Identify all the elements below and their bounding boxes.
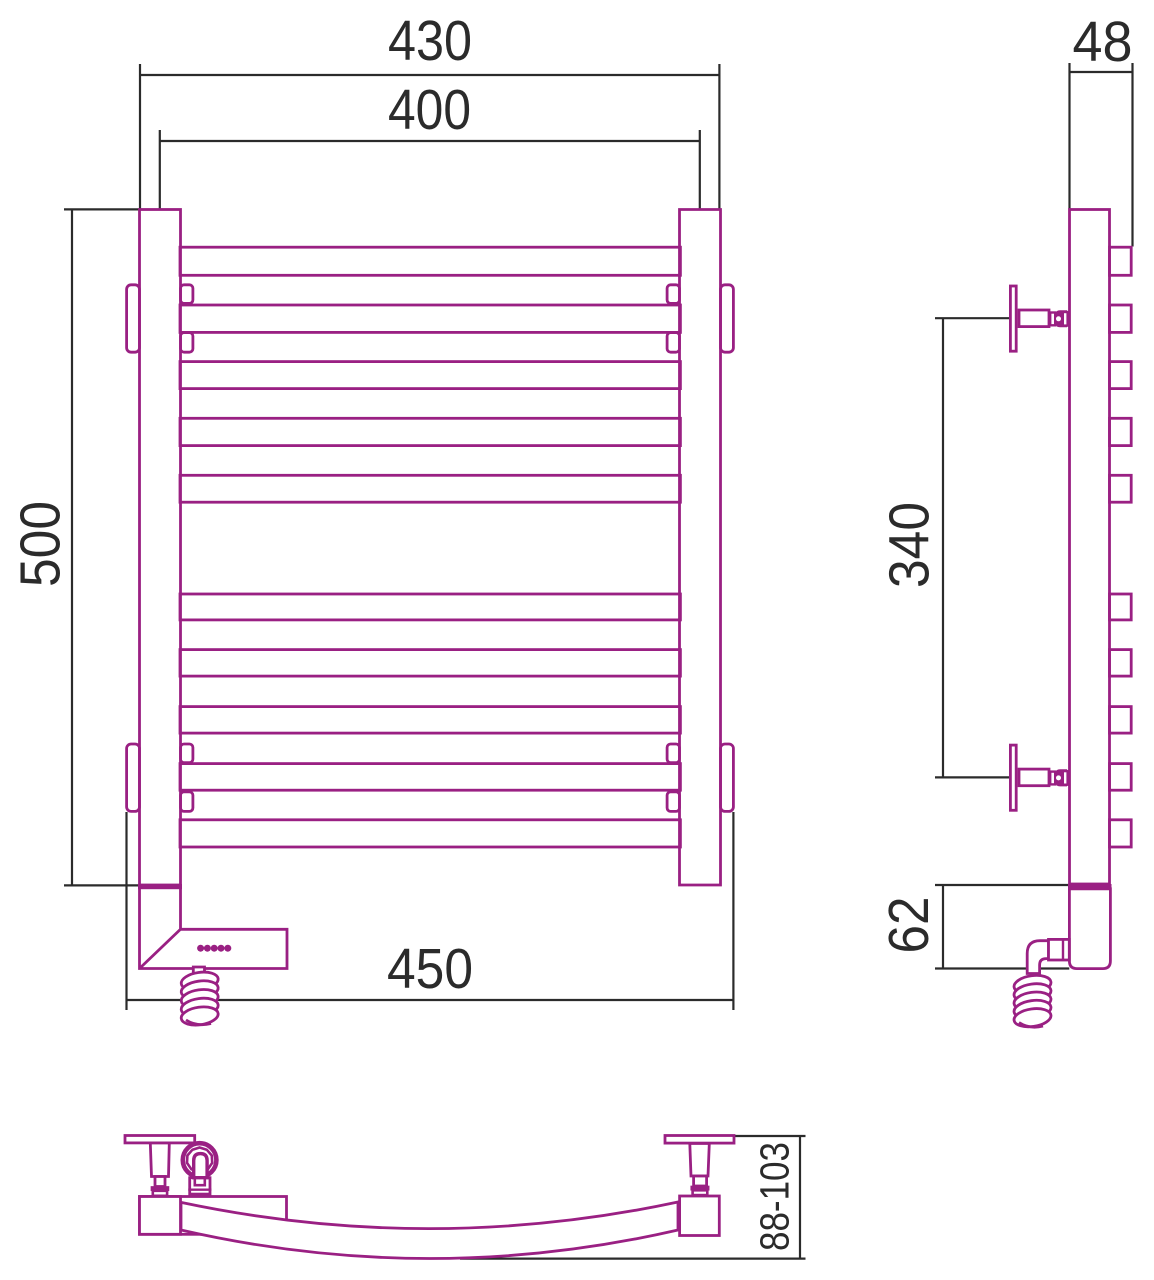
- svg-text:430: 430: [388, 9, 472, 73]
- svg-text:88-103: 88-103: [752, 1142, 798, 1251]
- svg-text:340: 340: [878, 502, 942, 588]
- svg-text:48: 48: [1073, 10, 1133, 74]
- svg-text:500: 500: [9, 501, 73, 587]
- svg-text:62: 62: [877, 897, 941, 954]
- svg-text:450: 450: [387, 937, 473, 1001]
- svg-text:400: 400: [388, 78, 471, 142]
